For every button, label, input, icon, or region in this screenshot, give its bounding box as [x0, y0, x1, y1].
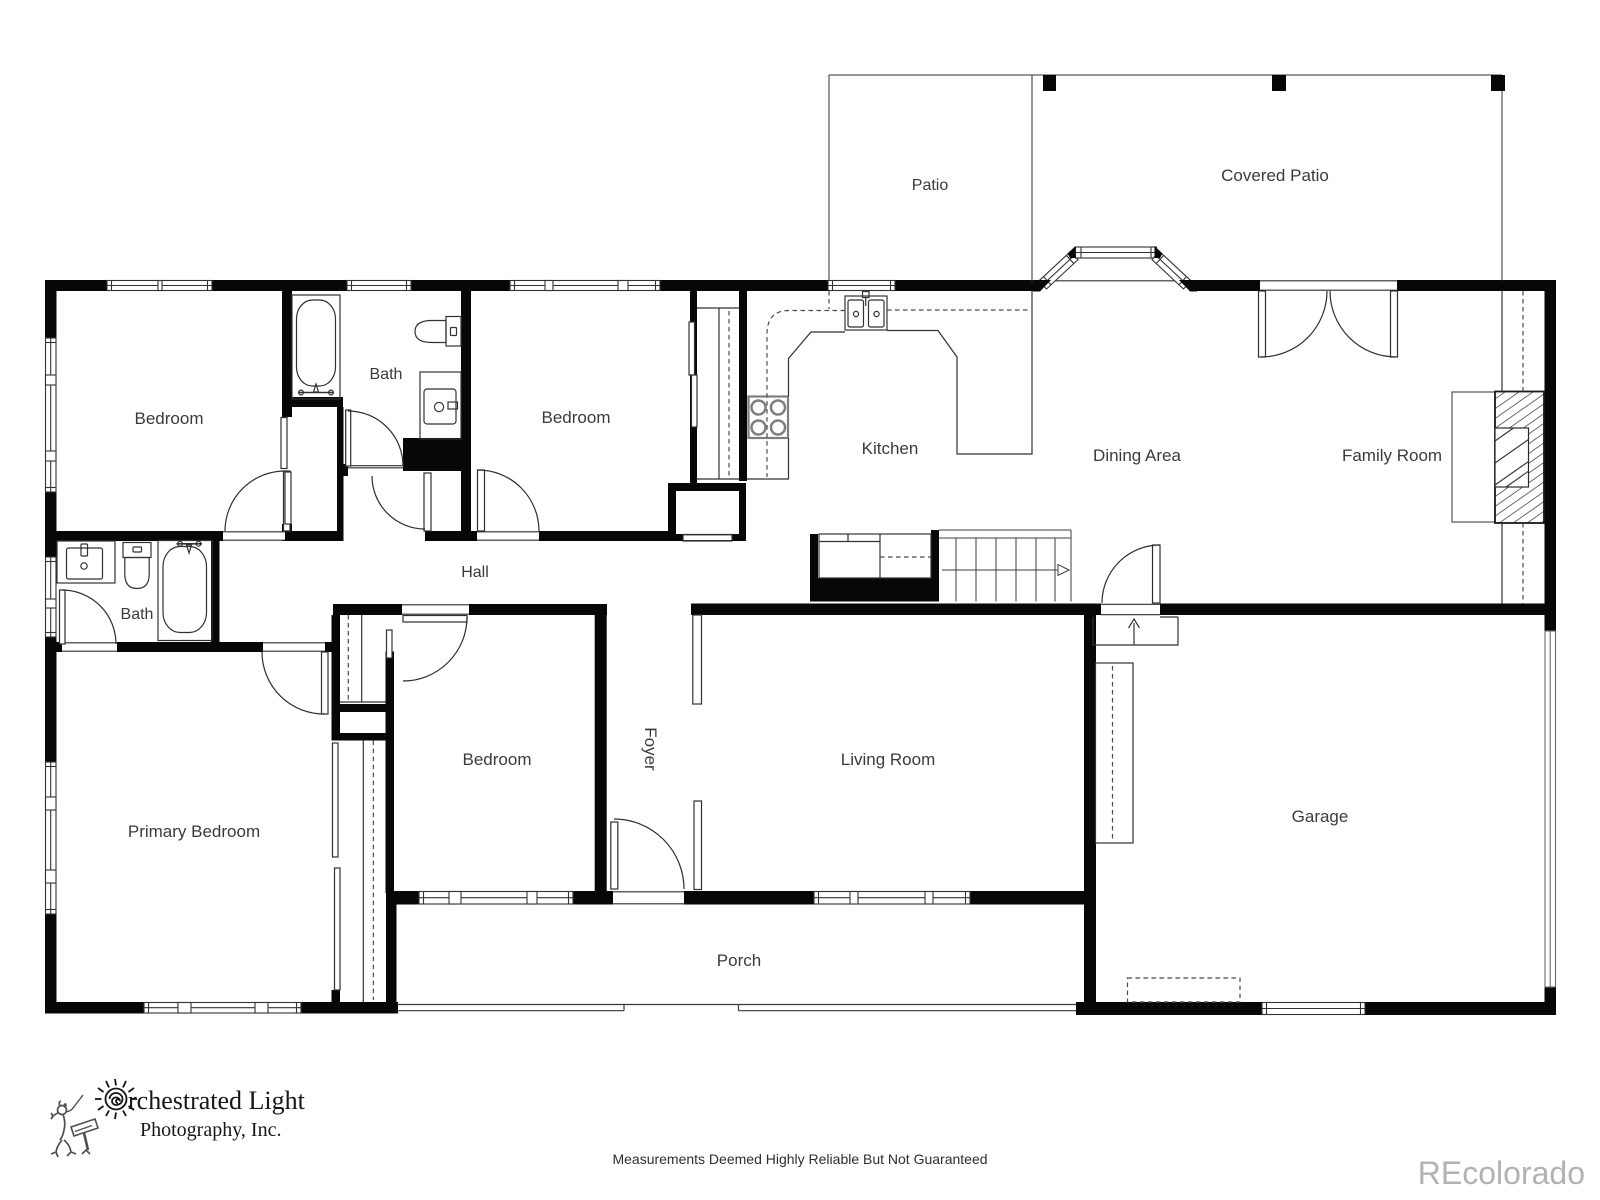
svg-text:Patio: Patio	[912, 177, 949, 194]
svg-text:Measurements Deemed Highly Rel: Measurements Deemed Highly Reliable But …	[612, 1151, 987, 1167]
svg-text:Primary Bedroom: Primary Bedroom	[128, 822, 260, 841]
svg-text:Bedroom: Bedroom	[135, 409, 204, 428]
svg-text:Dining Area: Dining Area	[1093, 446, 1181, 465]
svg-text:Bedroom: Bedroom	[542, 408, 611, 427]
svg-text:Bath: Bath	[370, 366, 403, 383]
svg-text:Porch: Porch	[717, 951, 761, 970]
svg-text:Foyer: Foyer	[641, 727, 660, 771]
svg-text:REcolorado: REcolorado	[1418, 1155, 1585, 1191]
svg-text:Kitchen: Kitchen	[862, 439, 919, 458]
svg-text:Family Room: Family Room	[1342, 446, 1442, 465]
svg-text:Bath: Bath	[121, 606, 154, 623]
svg-text:Garage: Garage	[1292, 807, 1349, 826]
svg-text:Photography, Inc.: Photography, Inc.	[140, 1119, 281, 1141]
svg-text:Hall: Hall	[461, 564, 489, 581]
svg-text:Living Room: Living Room	[841, 750, 936, 769]
svg-text:Bedroom: Bedroom	[463, 750, 532, 769]
svg-text:rchestrated Light: rchestrated Light	[128, 1086, 306, 1115]
svg-text:Covered Patio: Covered Patio	[1221, 166, 1329, 185]
